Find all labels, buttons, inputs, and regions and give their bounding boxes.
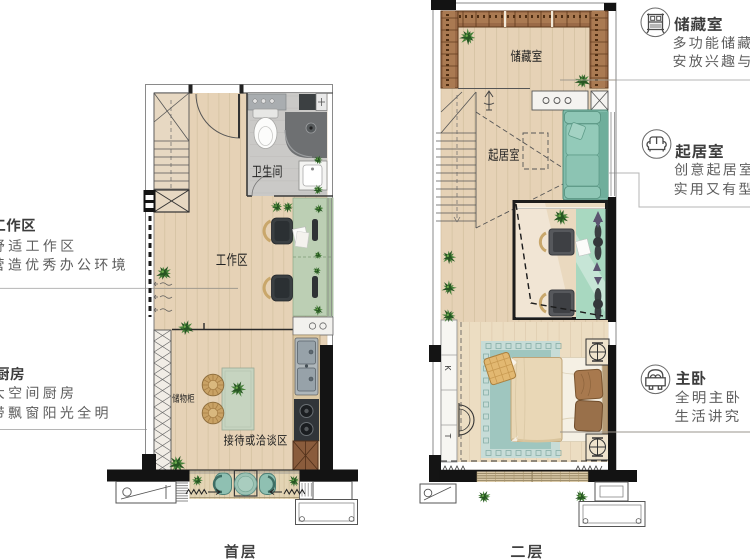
svg-text:K: K <box>443 365 452 371</box>
svg-text:T: T <box>443 434 452 439</box>
